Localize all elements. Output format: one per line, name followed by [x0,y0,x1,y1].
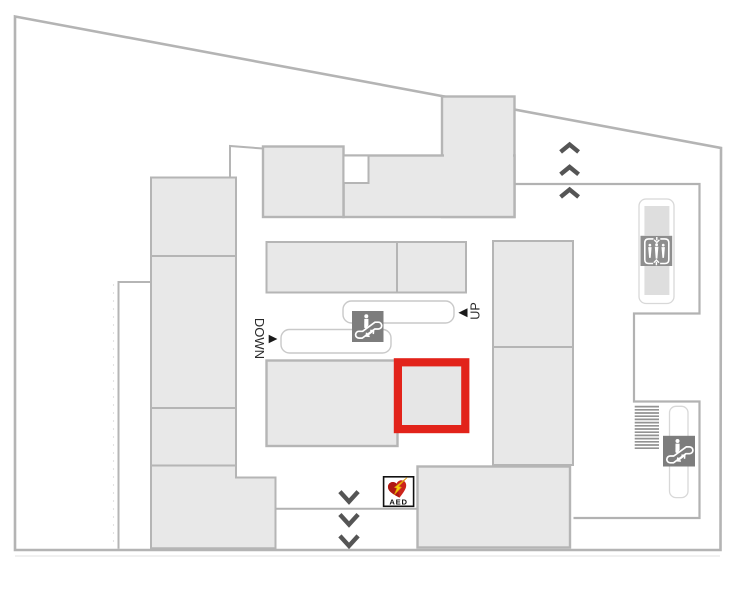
svg-text:DOWN: DOWN [252,318,267,359]
svg-text:AED: AED [389,498,407,507]
svg-text:UP: UP [469,302,483,320]
